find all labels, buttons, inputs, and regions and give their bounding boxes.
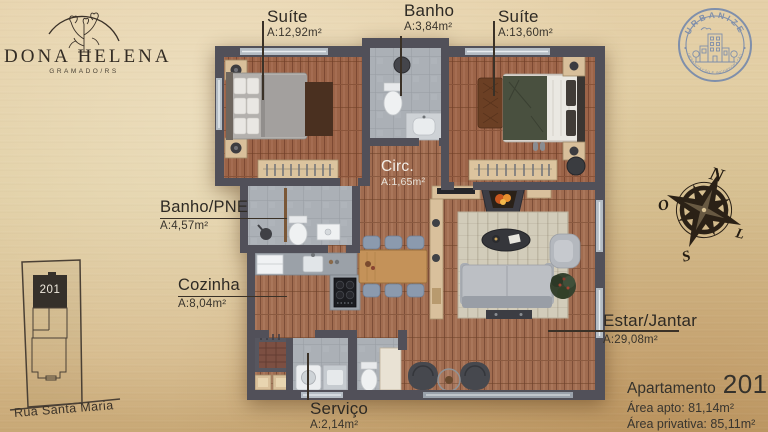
fireplace [481, 186, 525, 213]
compass-south-label: S [680, 248, 692, 266]
apartment-label: Apartamento [627, 380, 716, 398]
laundry-sink [323, 365, 347, 390]
rug-suite-1 [305, 82, 333, 136]
desk-chair-suite-2 [567, 157, 585, 175]
armchair [550, 234, 580, 268]
room-area: A:2,14m² [310, 419, 368, 431]
room-label-suite-1: Suíte A:12,92m² [267, 8, 322, 39]
room-area: A:8,04m² [178, 298, 287, 310]
compass-west-label: O [657, 197, 671, 215]
room-area-estar: A:29,08m² [603, 333, 658, 346]
room-label-banho: Banho A:3,84m² [404, 2, 454, 33]
room-label-banho-pne: Banho/PNE A:4,57m² [160, 199, 287, 232]
room-area: A:4,57m² [160, 220, 287, 232]
wardrobe-suite-1 [258, 160, 338, 180]
room-name: Estar/Jantar [603, 312, 697, 330]
leader-estar [548, 330, 679, 332]
site-plan-unit-number: 201 [33, 284, 67, 296]
stamp-building-icon [693, 28, 737, 62]
room-area: A:29,08m² [603, 334, 658, 346]
svg-text:URBANIZE: URBANIZE [683, 10, 748, 36]
bed-suite-2 [503, 72, 585, 144]
bench-suite-2 [478, 78, 503, 128]
room-label-estar: Estar/Jantar [603, 312, 697, 330]
plant [550, 273, 576, 299]
room-name: Circ. [381, 159, 425, 175]
leader-banho [400, 36, 402, 96]
leader-servico [307, 353, 309, 400]
room-area: A:3,84m² [404, 21, 454, 33]
room-area: A:12,92m² [267, 27, 322, 39]
room-label-servico: Serviço A:2,14m² [310, 400, 368, 431]
brand-name: DONA HELENA [4, 46, 164, 68]
wc-toilet [361, 362, 377, 391]
compass-east-label: L [733, 226, 746, 243]
washer [296, 365, 321, 390]
room-name: Serviço [310, 400, 368, 418]
room-area: A:13,60m² [498, 27, 553, 39]
room-label-suite-2: Suíte A:13,60m² [498, 8, 553, 39]
apartment-area-private: Área privativa: 85,11m² [627, 416, 768, 432]
brand-location: GRAMADO/RS [4, 68, 164, 75]
apartment-number: 201 [723, 369, 768, 400]
compass-north-label: N [706, 163, 727, 188]
brand-logo: DONA HELENA GRAMADO/RS [0, 0, 180, 90]
room-label-cozinha: Cozinha A:8,04m² [178, 277, 287, 310]
room-label-circ: Circ. A:1,65m² [381, 159, 425, 188]
bed-suite-1 [226, 72, 307, 140]
grill [255, 334, 290, 372]
leader-suite-2 [493, 21, 495, 96]
compass-rose: N O S L [656, 158, 756, 268]
coffee-table [482, 229, 530, 251]
poster-background: DONA HELENA GRAMADO/RS URBANIZE URBANIZA… [0, 0, 768, 432]
site-plan [8, 252, 126, 422]
room-name: Suíte [267, 8, 322, 26]
stamp-name: URBANIZE [683, 10, 748, 36]
developer-stamp: URBANIZE URBANIZAÇÃO E INCORPORAÇÃO [675, 5, 755, 85]
entry-door-leaf [380, 348, 401, 390]
apartment-info: Apartamento 201 Área apto: 81,14m² Área … [627, 369, 768, 432]
dining-table [359, 236, 427, 297]
wardrobe-suite-2 [469, 160, 557, 180]
room-area: A:1,65m² [381, 176, 425, 188]
leader-suite-1 [262, 21, 264, 100]
room-name: Suíte [498, 8, 553, 26]
room-name: Banho/PNE [160, 199, 287, 219]
room-name: Banho [404, 2, 454, 20]
apartment-area-total: Área apto: 81,14m² [627, 400, 768, 416]
room-name: Cozinha [178, 277, 287, 297]
